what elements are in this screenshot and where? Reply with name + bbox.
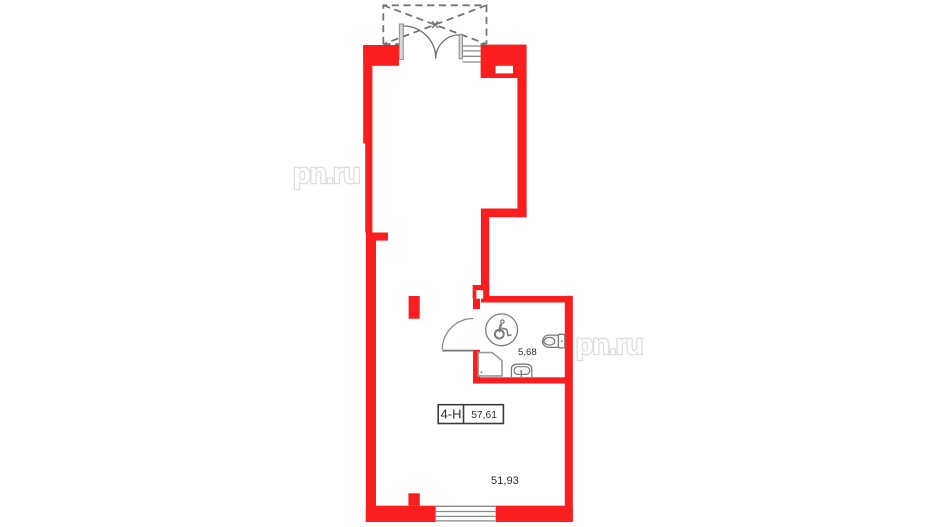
svg-text:57,61: 57,61 bbox=[471, 410, 497, 421]
svg-text:5,68: 5,68 bbox=[518, 347, 537, 358]
svg-text:pn.ru: pn.ru bbox=[576, 329, 643, 361]
svg-text:pn.ru: pn.ru bbox=[293, 158, 360, 190]
svg-text:51,93: 51,93 bbox=[491, 475, 519, 487]
svg-text:4-Н: 4-Н bbox=[441, 407, 462, 422]
